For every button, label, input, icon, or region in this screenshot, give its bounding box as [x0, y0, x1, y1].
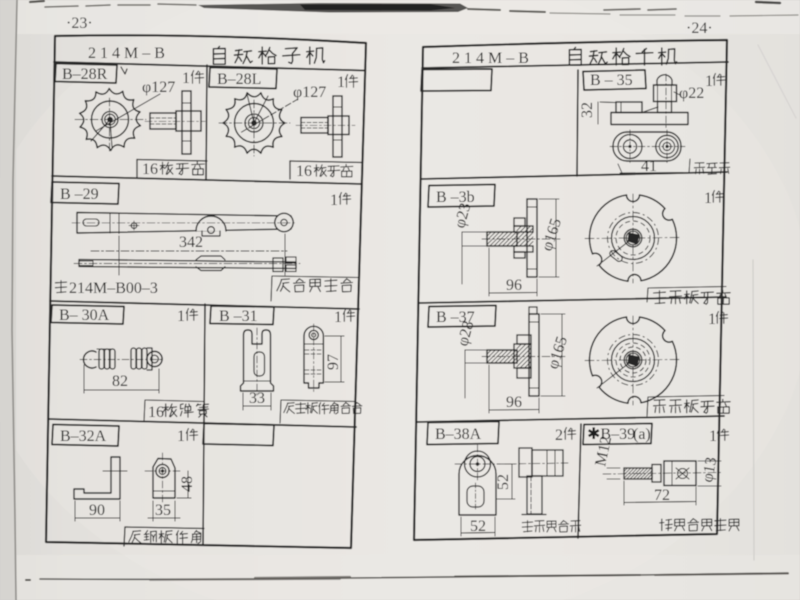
- svg-text:97: 97: [325, 354, 342, 370]
- svg-text:82: 82: [112, 373, 128, 390]
- svg-text:(a): (a): [633, 426, 651, 443]
- svg-text:1: 1: [704, 190, 712, 207]
- svg-text:B–28L: B–28L: [217, 71, 261, 88]
- svg-text:φ127: φ127: [142, 79, 175, 96]
- svg-text:B–28R: B–28R: [62, 66, 108, 83]
- svg-text:32: 32: [579, 102, 596, 118]
- svg-text:1: 1: [177, 308, 185, 325]
- svg-text:·24·: ·24·: [686, 20, 713, 37]
- svg-text:2 1 4 M – B: 2 1 4 M – B: [88, 45, 165, 62]
- svg-text:B–38A: B–38A: [435, 426, 482, 443]
- svg-text:1: 1: [708, 311, 716, 328]
- svg-text:96: 96: [506, 394, 522, 411]
- svg-text:1: 1: [182, 70, 190, 87]
- svg-text:52: 52: [495, 474, 512, 490]
- svg-text:2 1 4 M – B: 2 1 4 M – B: [452, 50, 529, 67]
- svg-text:B –29: B –29: [60, 186, 99, 203]
- svg-text:B –3b: B –3b: [436, 189, 475, 206]
- svg-text:33: 33: [249, 390, 265, 407]
- svg-text:φ22: φ22: [679, 85, 704, 102]
- svg-text:342: 342: [179, 234, 203, 251]
- svg-text:16: 16: [296, 163, 312, 180]
- svg-text:90: 90: [89, 502, 105, 519]
- svg-text:B –31: B –31: [219, 308, 258, 325]
- svg-text:φ127: φ127: [293, 84, 326, 101]
- svg-text:B– 30A: B– 30A: [59, 307, 110, 324]
- svg-text:1: 1: [334, 309, 342, 326]
- svg-text:1: 1: [177, 428, 185, 445]
- svg-text:16: 16: [148, 404, 164, 421]
- svg-text:214M–B00–3: 214M–B00–3: [69, 280, 158, 297]
- svg-text:35: 35: [155, 502, 171, 519]
- svg-text:B – 35: B – 35: [590, 72, 633, 89]
- svg-text:1: 1: [705, 73, 713, 90]
- svg-text:B–32A: B–32A: [60, 428, 107, 445]
- svg-text:·23·: ·23·: [66, 15, 93, 32]
- svg-text:48: 48: [179, 476, 196, 492]
- svg-text:16: 16: [142, 161, 158, 178]
- svg-text:96: 96: [506, 277, 522, 294]
- svg-text:1: 1: [337, 74, 345, 91]
- svg-text:1: 1: [709, 428, 717, 445]
- svg-text:2: 2: [555, 427, 563, 444]
- svg-text:1: 1: [330, 192, 338, 209]
